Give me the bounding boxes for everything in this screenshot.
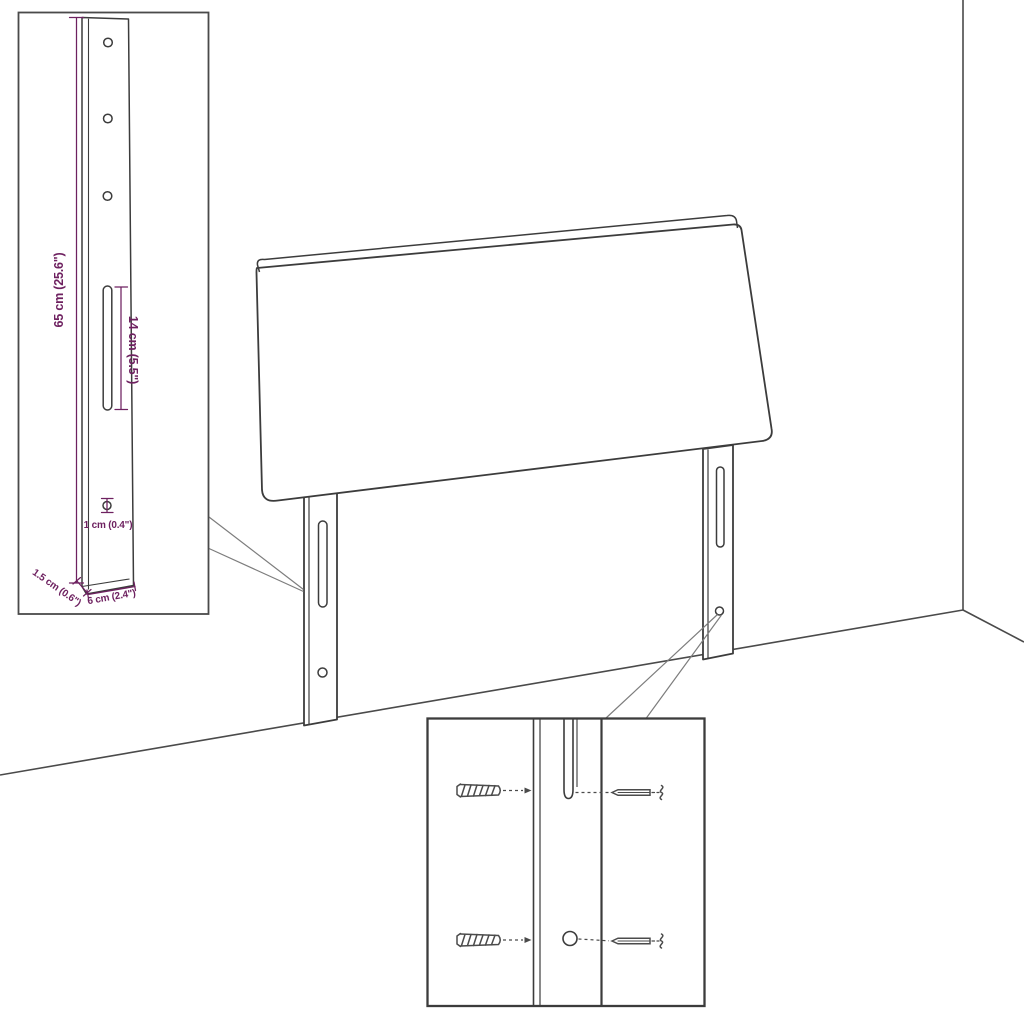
hardware-detail-inset — [428, 719, 705, 1007]
height-dimension-label: 65 cm (25.6") — [52, 253, 66, 328]
headboard-assembly-diagram: 65 cm (25.6") 14 cm (5.5") 1 cm (0.4") 1… — [0, 0, 1024, 1024]
bracket-drawing — [82, 18, 134, 595]
callout-lines — [209, 517, 722, 719]
hole-dimension-label: 1 cm (0.4") — [84, 520, 133, 531]
headboard-panel — [256, 215, 771, 501]
headboard-right-leg — [703, 445, 733, 660]
bracket-outline — [82, 18, 134, 595]
panel-front-face — [256, 224, 771, 500]
callout-inset-to-left-leg — [209, 517, 304, 592]
bracket-dimension-inset: 65 cm (25.6") 14 cm (5.5") 1 cm (0.4") 1… — [19, 13, 209, 615]
detail-frame — [428, 719, 705, 1007]
detail-hole — [563, 932, 577, 946]
slot-dimension-label: 14 cm (5.5") — [126, 316, 140, 384]
floor-line-right — [963, 610, 1024, 642]
product-diagram-canvas: 65 cm (25.6") 14 cm (5.5") 1 cm (0.4") 1… — [0, 0, 1024, 1024]
headboard — [256, 215, 771, 725]
headboard-left-leg — [304, 465, 337, 726]
